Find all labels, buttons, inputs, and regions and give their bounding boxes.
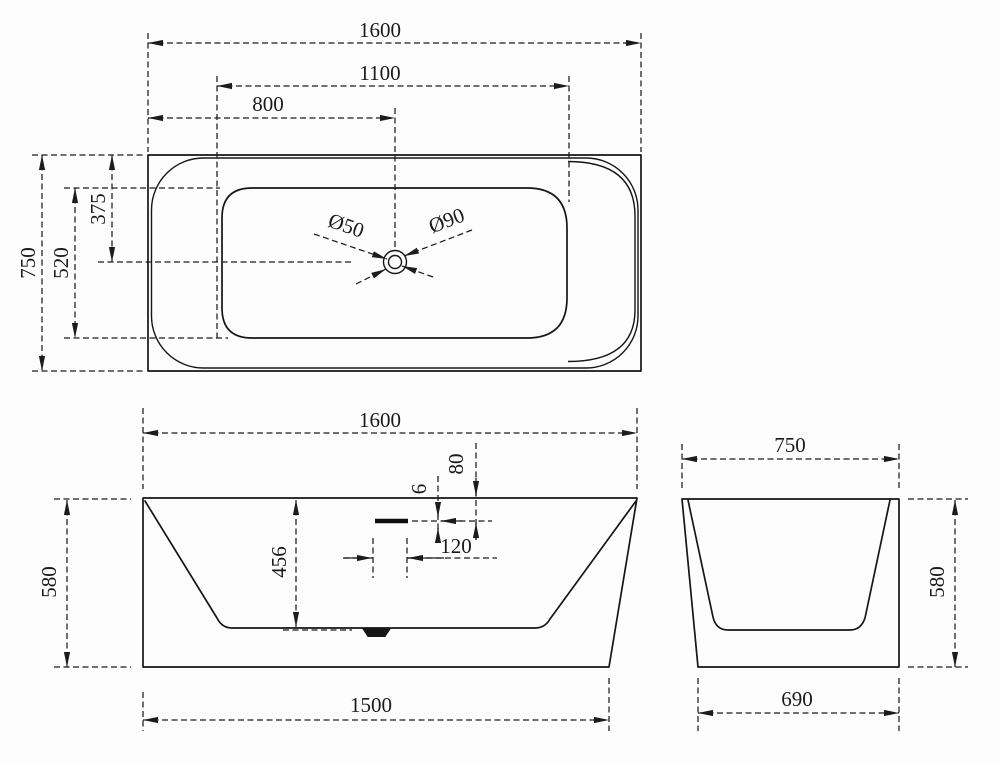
dim-front-height: 580: [37, 500, 67, 667]
dim-label-drain-flange-diameter: Ø90: [425, 203, 467, 238]
dim-inner-depth: 456: [267, 500, 296, 627]
top-view: 1600 1100 800 750 520 375 Ø50: [16, 18, 641, 371]
dim-label-overflow-slot-height: 6: [407, 484, 431, 495]
dim-label-front-length: 1600: [359, 408, 401, 432]
dim-label-side-height: 580: [925, 566, 949, 598]
dim-label-overflow-slot-length: 120: [440, 534, 472, 558]
dim-top-width: 750: [16, 155, 42, 371]
dim-top-inner-length: 1100: [217, 61, 569, 86]
dim-drain-from-back: 375: [86, 155, 112, 262]
dim-label-side-width: 750: [774, 433, 806, 457]
dim-side-height: 580: [925, 500, 955, 667]
dim-side-base-width: 690: [698, 687, 899, 713]
dim-label-drain-diameter: Ø50: [325, 208, 367, 242]
top-view-extension-lines: [32, 33, 641, 371]
dim-label-drain-from-back: 375: [86, 193, 110, 225]
dim-overflow-slot-length: 120: [344, 534, 472, 558]
dim-overflow-from-rim: 80: [444, 454, 476, 541]
dim-label-base-length: 1500: [350, 693, 392, 717]
dim-drain-flange-diameter: Ø90: [356, 203, 472, 284]
dim-label-overflow-from-rim: 80: [444, 454, 468, 475]
bathtub-technical-drawing: 1600 1100 800 750 520 375 Ø50: [0, 0, 1000, 764]
side-view-body: [682, 499, 899, 667]
bathtub-technical-drawing-page: 1600 1100 800 750 520 375 Ø50: [0, 0, 1000, 764]
side-view: 750 580 690: [682, 433, 968, 731]
side-outline: [682, 499, 899, 667]
dim-side-width: 750: [682, 433, 899, 459]
dim-label-side-base-width: 690: [781, 687, 813, 711]
dim-label-inner-length: 1100: [359, 61, 400, 85]
dim-front-length: 1600: [143, 408, 637, 433]
tub-rim-inner-edge: [568, 162, 635, 362]
dim-label-top-length: 1600: [359, 18, 401, 42]
dim-drain-diameter: Ø50: [314, 208, 433, 277]
drain-hole-circle: [389, 256, 402, 269]
dim-label-front-height: 580: [37, 566, 61, 598]
dim-top-length: 1600: [148, 18, 641, 43]
dim-label-inner-depth: 456: [267, 546, 291, 578]
side-inner-bowl: [688, 500, 890, 630]
waste-drain-symbol: [363, 629, 390, 637]
tub-inner-bowl: [222, 188, 567, 338]
dim-top-inner-width: 520: [49, 188, 75, 338]
front-outline: [143, 498, 637, 667]
dim-label-top-width: 750: [16, 247, 40, 279]
dim-drain-from-left: 800: [148, 92, 395, 118]
dim-base-length: 1500: [143, 693, 609, 720]
front-view-body: [143, 498, 637, 667]
front-view-extension-lines: [54, 408, 637, 731]
dim-label-drain-from-left: 800: [252, 92, 284, 116]
front-view: 1600 580 456 6 80 120 1500: [37, 408, 637, 731]
drain-flange-circle: [384, 251, 407, 274]
dim-label-inner-width: 520: [49, 247, 73, 279]
